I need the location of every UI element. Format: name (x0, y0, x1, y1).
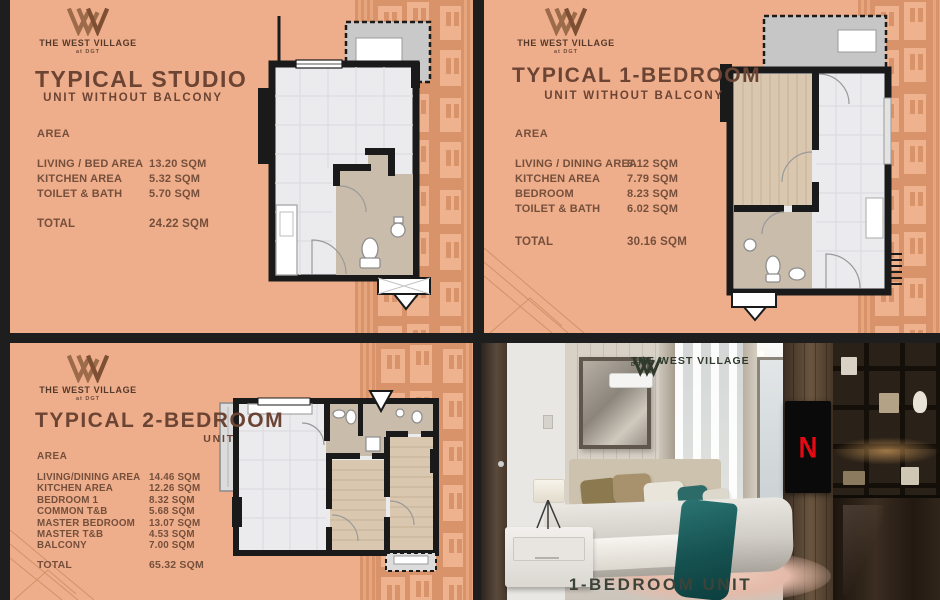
room-door (481, 343, 507, 600)
lamp-tripod-legs (531, 500, 567, 530)
vase (913, 391, 927, 413)
row-value: 14.46 SQM (149, 472, 200, 483)
row-label: MASTER BEDROOM (37, 518, 135, 529)
brand-tagline: at DGT (32, 49, 144, 55)
shelf-item (841, 357, 857, 375)
total-value: 24.22 SQM (149, 218, 209, 230)
brand-name: THE WEST VILLAGE (510, 38, 622, 48)
studio-floor-plan (248, 0, 443, 312)
area-row: KITCHEN AREA7.79 SQM (515, 173, 637, 188)
row-value: 7.00 SQM (149, 540, 195, 551)
total-label: TOTAL (515, 236, 553, 248)
row-label: COMMON T&B (37, 506, 108, 517)
studio-title: TYPICAL STUDIO (35, 66, 247, 93)
row-value: 12.26 SQM (149, 483, 200, 494)
brand-logo: THE WEST VILLAGE at DGT (32, 6, 144, 55)
area-row: LIVING/DINING AREA14.46 SQM (37, 472, 140, 483)
brand-tagline: at DGT (32, 396, 144, 402)
brand-name: THE WEST VILLAGE (32, 385, 144, 395)
area-row: COMMON T&B5.68 SQM (37, 506, 140, 517)
row-label: BEDROOM (515, 188, 574, 200)
brand-logo: THE WEST VILLAGE at DGT (510, 6, 622, 55)
studio-area-label: AREA (37, 128, 70, 140)
total-label: TOTAL (37, 559, 72, 571)
studio-area-table: LIVING / BED AREA13.20 SQM KITCHEN AREA5… (37, 158, 143, 203)
row-value: 7.79 SQM (627, 173, 678, 185)
one-bedroom-area-label: AREA (515, 128, 548, 140)
row-label: KITCHEN AREA (37, 173, 122, 185)
corner-line-decoration (484, 248, 614, 333)
row-value: 8.32 SQM (149, 495, 195, 506)
row-label: LIVING / BED AREA (37, 158, 143, 170)
row-value: 13.07 SQM (149, 518, 200, 529)
area-row: BEDROOM 18.32 SQM (37, 495, 140, 506)
brand-logo: THE WEST VILLAGE at DGT (32, 353, 144, 402)
one-bedroom-floor-plan (716, 2, 906, 322)
area-row: TOILET & BATH5.70 SQM (37, 188, 143, 203)
brand-name: THE WEST VILLAGE (32, 38, 144, 48)
shelf-light-glow (833, 437, 940, 465)
shelf-item (843, 471, 865, 485)
area-row: MASTER T&B4.53 SQM (37, 529, 140, 540)
shelf-item (879, 393, 899, 413)
total-value: 65.32 SQM (149, 559, 204, 571)
total-label: TOTAL (37, 218, 75, 230)
two-bedroom-total-row: TOTAL 65.32 SQM (37, 559, 72, 571)
row-value: 5.68 SQM (149, 506, 195, 517)
shelf-item (901, 467, 919, 485)
one-bedroom-subtitle: UNIT WITHOUT BALCONY (512, 90, 724, 102)
one-bedroom-photo-panel: N THE WEST VILLAGE at DGT 1-BEDROOM UN (481, 343, 940, 600)
area-row: MASTER BEDROOM13.07 SQM (37, 518, 140, 529)
row-value: 4.53 SQM (149, 529, 195, 540)
row-value: 8.23 SQM (627, 188, 678, 200)
two-bedroom-panel: THE WEST VILLAGE at DGT TYPICAL 2-BEDROO… (10, 343, 473, 600)
one-bedroom-area-table: LIVING / DINING AREA8.12 SQM KITCHEN ARE… (515, 158, 637, 218)
brand-tagline: at DGT (510, 49, 622, 55)
ceiling-light (759, 351, 764, 356)
row-label: LIVING/DINING AREA (37, 472, 140, 483)
row-label: KITCHEN AREA (37, 483, 113, 494)
light-switch (543, 415, 553, 429)
one-bedroom-total-row: TOTAL 30.16 SQM (515, 236, 553, 248)
row-label: BEDROOM 1 (37, 495, 98, 506)
brand-monogram-icon (543, 6, 589, 36)
studio-panel: THE WEST VILLAGE at DGT TYPICAL STUDIO U… (10, 0, 473, 333)
area-row: BEDROOM8.23 SQM (515, 188, 637, 203)
cabinet-glass-reflection (843, 505, 883, 595)
row-value: 8.12 SQM (627, 158, 678, 170)
photo-caption: 1-BEDROOM UNIT (481, 575, 840, 595)
area-row: LIVING / BED AREA13.20 SQM (37, 158, 143, 173)
door-handle (498, 461, 504, 467)
row-label: LIVING / DINING AREA (515, 158, 637, 170)
two-bedroom-area-table: LIVING/DINING AREA14.46 SQM KITCHEN AREA… (37, 472, 140, 552)
brand-monogram-icon (65, 353, 111, 383)
row-label: KITCHEN AREA (515, 173, 600, 185)
row-value: 5.70 SQM (149, 188, 200, 200)
area-row: KITCHEN AREA5.32 SQM (37, 173, 143, 188)
total-value: 30.16 SQM (627, 236, 687, 248)
area-row: TOILET & BATH6.02 SQM (515, 203, 637, 218)
row-value: 13.20 SQM (149, 158, 206, 170)
row-label: TOILET & BATH (37, 188, 122, 200)
brand-logo: THE WEST VILLAGE at DGT (631, 355, 663, 377)
two-bedroom-area-label: AREA (37, 451, 67, 462)
brand-tagline: at DGT (631, 356, 646, 368)
one-bedroom-panel: THE WEST VILLAGE at DGT TYPICAL 1-BEDROO… (484, 0, 940, 333)
one-bedroom-title: TYPICAL 1-BEDROOM (512, 64, 761, 88)
television: N (785, 401, 831, 493)
row-label: TOILET & BATH (515, 203, 600, 215)
brand-name: THE WEST VILLAGE (631, 355, 750, 367)
row-value: 6.02 SQM (627, 203, 678, 215)
two-bedroom-title: TYPICAL 2-BEDROOM (35, 409, 284, 433)
row-label: MASTER T&B (37, 529, 103, 540)
studio-total-row: TOTAL 24.22 SQM (37, 218, 75, 230)
brand-monogram-icon (65, 6, 111, 36)
two-bedroom-subtitle: UNIT (35, 433, 235, 445)
brochure-canvas: { "brand": { "name": "THE WEST VILLAGE",… (0, 0, 940, 600)
studio-subtitle: UNIT WITHOUT BALCONY (35, 92, 231, 104)
tv-logo: N (799, 429, 818, 465)
drawer-handle (535, 557, 559, 559)
row-value: 5.32 SQM (149, 173, 200, 185)
area-row: BALCONY7.00 SQM (37, 540, 140, 551)
row-label: BALCONY (37, 540, 87, 551)
area-row: KITCHEN AREA12.26 SQM (37, 483, 140, 494)
area-row: LIVING / DINING AREA8.12 SQM (515, 158, 637, 173)
